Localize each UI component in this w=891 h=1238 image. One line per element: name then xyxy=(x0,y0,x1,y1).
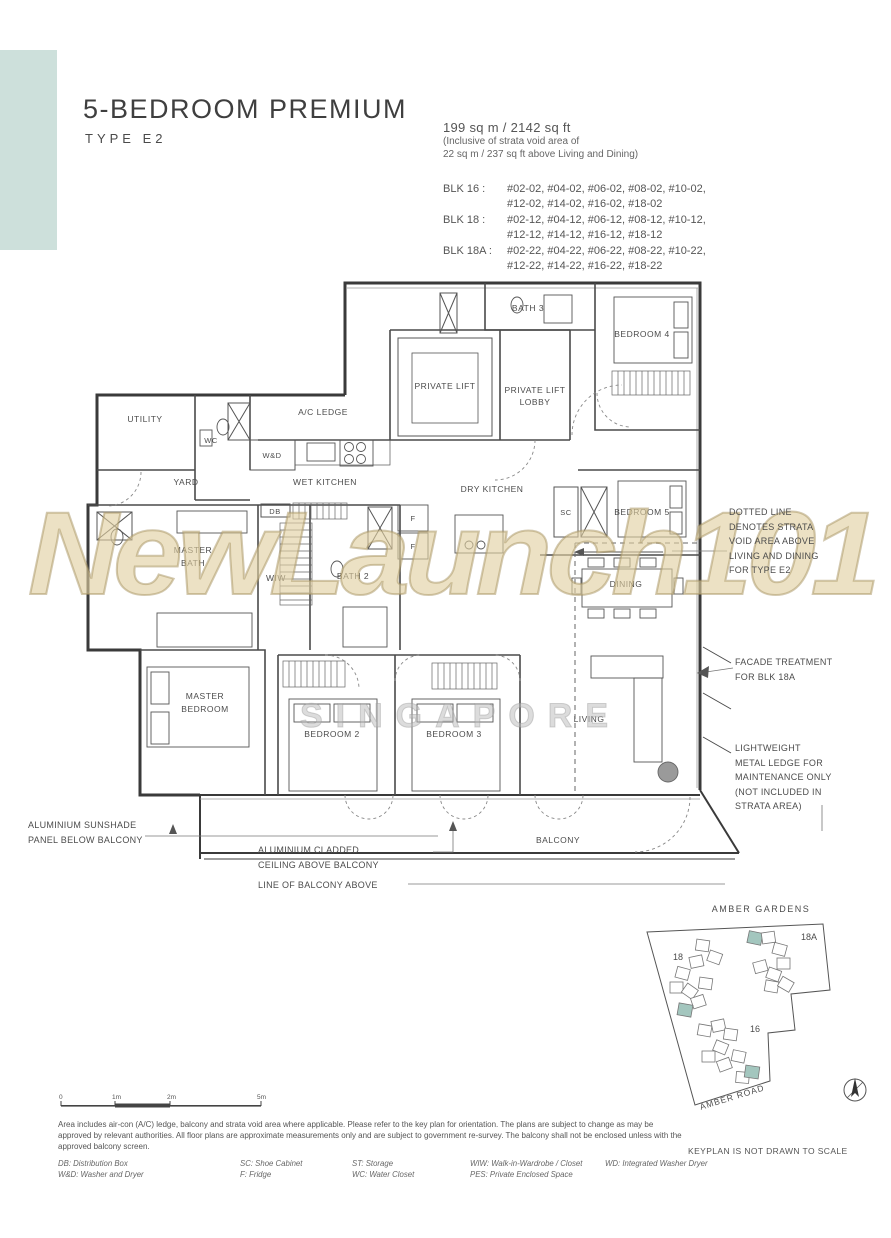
block-units: #02-12, #04-12, #06-12, #08-12, #10-12, … xyxy=(507,213,706,243)
area-info: 199 sq m / 2142 sq ft (Inclusive of stra… xyxy=(443,120,638,161)
annotation-line: CEILING ABOVE BALCONY xyxy=(258,858,379,873)
annotation-line: METAL LEDGE FOR xyxy=(735,756,832,771)
block-row: BLK 18A : #02-22, #04-22, #06-22, #08-22… xyxy=(443,244,706,274)
annotation-strata-void: DOTTED LINE DENOTES STRATA VOID AREA ABO… xyxy=(729,505,819,578)
label-dry-kitchen: DRY KITCHEN xyxy=(461,484,524,494)
annotation-line: ALUMINIUM SUNSHADE xyxy=(28,818,143,833)
label-master-bedroom-line2: BEDROOM xyxy=(181,704,228,714)
label-master-bath-line2: BATH xyxy=(181,558,205,568)
area-note-line2: 22 sq m / 237 sq ft above Living and Din… xyxy=(443,148,638,161)
wardrobe-hatching xyxy=(280,371,690,689)
legend-item-st: ST: Storage xyxy=(352,1159,470,1168)
scale-tick-1m: 1m xyxy=(112,1094,121,1101)
label-ac-ledge: A/C LEDGE xyxy=(298,407,348,417)
scale-tick-0: 0 xyxy=(59,1094,63,1101)
legend-item-sc: SC: Shoe Cabinet xyxy=(240,1159,352,1168)
block-units-line1: #02-22, #04-22, #06-22, #08-22, #10-22, xyxy=(507,245,706,257)
keyplan-buildings-blk18a xyxy=(747,931,794,993)
block-label: BLK 18 : xyxy=(443,213,507,243)
annotation-line: PANEL BELOW BALCONY xyxy=(28,833,143,848)
scale-bar: 0 1m 2m 5m xyxy=(58,1093,268,1111)
label-master-bedroom-line1: MASTER xyxy=(186,691,224,701)
keyplan-label-blk18a: 18A xyxy=(801,932,817,942)
block-unit-list: BLK 16 : #02-02, #04-02, #06-02, #08-02,… xyxy=(443,182,706,275)
keyplan-note: KEYPLAN IS NOT DRAWN TO SCALE xyxy=(688,1146,848,1156)
label-wet-kitchen: WET KITCHEN xyxy=(293,477,357,487)
label-lift-lobby-line1: PRIVATE LIFT xyxy=(505,385,566,395)
legend-item-db: DB: Distribution Box xyxy=(58,1159,240,1168)
legend-item-wc: WC: Water Closet xyxy=(352,1170,470,1179)
legend-item-f: F: Fridge xyxy=(240,1170,352,1179)
annotation-line: DENOTES STRATA xyxy=(729,520,819,535)
legend-item-wnd: W&D: Washer and Dryer xyxy=(58,1170,240,1179)
label-bedroom4: BEDROOM 4 xyxy=(614,329,670,339)
annotation-cladded-ceiling: ALUMINIUM CLADDED CEILING ABOVE BALCONY xyxy=(258,843,379,872)
page-subtitle: TYPE E2 xyxy=(85,131,166,146)
label-bedroom3: BEDROOM 3 xyxy=(426,729,482,739)
annotation-line: (NOT INCLUDED IN xyxy=(735,785,832,800)
annotation-line: LIGHTWEIGHT xyxy=(735,741,832,756)
label-bath3: BATH 3 xyxy=(512,303,544,313)
leader-arrowheads xyxy=(169,666,709,834)
accent-bar xyxy=(0,50,57,250)
area-size: 199 sq m / 2142 sq ft xyxy=(443,120,638,135)
label-bath2: BATH 2 xyxy=(337,571,369,581)
legend-item-wiw: WIW: Walk-in-Wardrobe / Closet xyxy=(470,1159,605,1168)
page-title: 5-BEDROOM PREMIUM xyxy=(83,94,407,125)
label-wc: WC xyxy=(204,436,218,445)
floorplan-page: 5-BEDROOM PREMIUM TYPE E2 199 sq m / 214… xyxy=(0,0,891,1238)
annotation-sunshade: ALUMINIUM SUNSHADE PANEL BELOW BALCONY xyxy=(28,818,143,847)
label-private-lift: PRIVATE LIFT xyxy=(415,381,476,391)
keyplan-label-blk18: 18 xyxy=(673,952,683,962)
annotation-line: ALUMINIUM CLADDED xyxy=(258,843,379,858)
annotation-line: FACADE TREATMENT xyxy=(735,655,832,670)
keyplan-title: AMBER GARDENS xyxy=(712,904,811,914)
label-sc: SC xyxy=(560,508,572,517)
label-balcony: BALCONY xyxy=(536,835,580,845)
legend-item-pes: PES: Private Enclosed Space xyxy=(470,1170,605,1179)
shafts xyxy=(97,293,607,549)
label-dining: DINING xyxy=(610,579,643,589)
scale-tick-2m: 2m xyxy=(167,1094,176,1101)
block-units: #02-22, #04-22, #06-22, #08-22, #10-22, … xyxy=(507,244,706,274)
outer-walls xyxy=(88,283,739,859)
annotation-line: VOID AREA ABOVE xyxy=(729,534,819,549)
block-row: BLK 18 : #02-12, #04-12, #06-12, #08-12,… xyxy=(443,213,706,243)
leader-lines xyxy=(145,551,822,884)
annotation-line: LINE OF BALCONY ABOVE xyxy=(258,878,378,893)
annotation-line: FOR TYPE E2 xyxy=(729,563,819,578)
compass-icon xyxy=(844,1078,866,1101)
interior-walls xyxy=(88,283,731,795)
block-label: BLK 16 : xyxy=(443,182,507,212)
annotation-balcony-line: LINE OF BALCONY ABOVE xyxy=(258,878,378,893)
block-units-line1: #02-02, #04-02, #06-02, #08-02, #10-02, xyxy=(507,183,706,195)
keyplan-label-blk16: 16 xyxy=(750,1024,760,1034)
block-row: BLK 16 : #02-02, #04-02, #06-02, #08-02,… xyxy=(443,182,706,212)
block-units: #02-02, #04-02, #06-02, #08-02, #10-02, … xyxy=(507,182,706,212)
annotation-line: STRATA AREA) xyxy=(735,799,832,814)
keyplan-road-label: AMBER ROAD xyxy=(699,1083,766,1112)
label-fridge-2: F xyxy=(410,542,415,551)
legend-item-wd: WD: Integrated Washer Dryer xyxy=(605,1159,708,1168)
block-units-line2: #12-02, #14-02, #16-02, #18-02 xyxy=(507,198,662,210)
room-labels: BATH 3 BEDROOM 4 PRIVATE LIFT PRIVATE LI… xyxy=(127,303,669,845)
annotation-line: MAINTENANCE ONLY xyxy=(735,770,832,785)
annotation-line: FOR BLK 18A xyxy=(735,670,832,685)
block-label: BLK 18A : xyxy=(443,244,507,274)
disclaimer-text: Area includes air-con (A/C) ledge, balco… xyxy=(58,1119,686,1152)
floorplan-drawing: BATH 3 BEDROOM 4 PRIVATE LIFT PRIVATE LI… xyxy=(85,275,891,910)
legend: DB: Distribution Box SC: Shoe Cabinet ST… xyxy=(58,1159,708,1179)
label-living: LIVING xyxy=(574,714,605,724)
block-units-line2: #12-22, #14-22, #16-22, #18-22 xyxy=(507,260,662,272)
keyplan-buildings-blk18 xyxy=(670,939,723,1017)
label-yard: YARD xyxy=(174,477,199,487)
label-bedroom5: BEDROOM 5 xyxy=(614,507,670,517)
block-units-line1: #02-12, #04-12, #06-12, #08-12, #10-12, xyxy=(507,214,706,226)
block-units-line2: #12-12, #14-12, #16-12, #18-12 xyxy=(507,229,662,241)
annotation-line: LIVING AND DINING xyxy=(729,549,819,564)
label-fridge-1: F xyxy=(410,514,415,523)
annotation-line: DOTTED LINE xyxy=(729,505,819,520)
label-utility: UTILITY xyxy=(127,414,162,424)
label-bedroom2: BEDROOM 2 xyxy=(304,729,360,739)
scale-tick-5m: 5m xyxy=(257,1094,266,1101)
label-wd: W&D xyxy=(263,451,282,460)
annotation-metal-ledge: LIGHTWEIGHT METAL LEDGE FOR MAINTENANCE … xyxy=(735,741,832,814)
keyplan: AMBER GARDENS xyxy=(633,898,891,1140)
annotation-facade: FACADE TREATMENT FOR BLK 18A xyxy=(735,655,832,684)
label-master-bath-line1: MASTER xyxy=(174,545,212,555)
label-db: DB xyxy=(269,507,280,516)
label-lift-lobby-line2: LOBBY xyxy=(520,397,551,407)
area-note-line1: (Inclusive of strata void area of xyxy=(443,135,638,148)
label-wiw: WIW xyxy=(266,573,286,583)
